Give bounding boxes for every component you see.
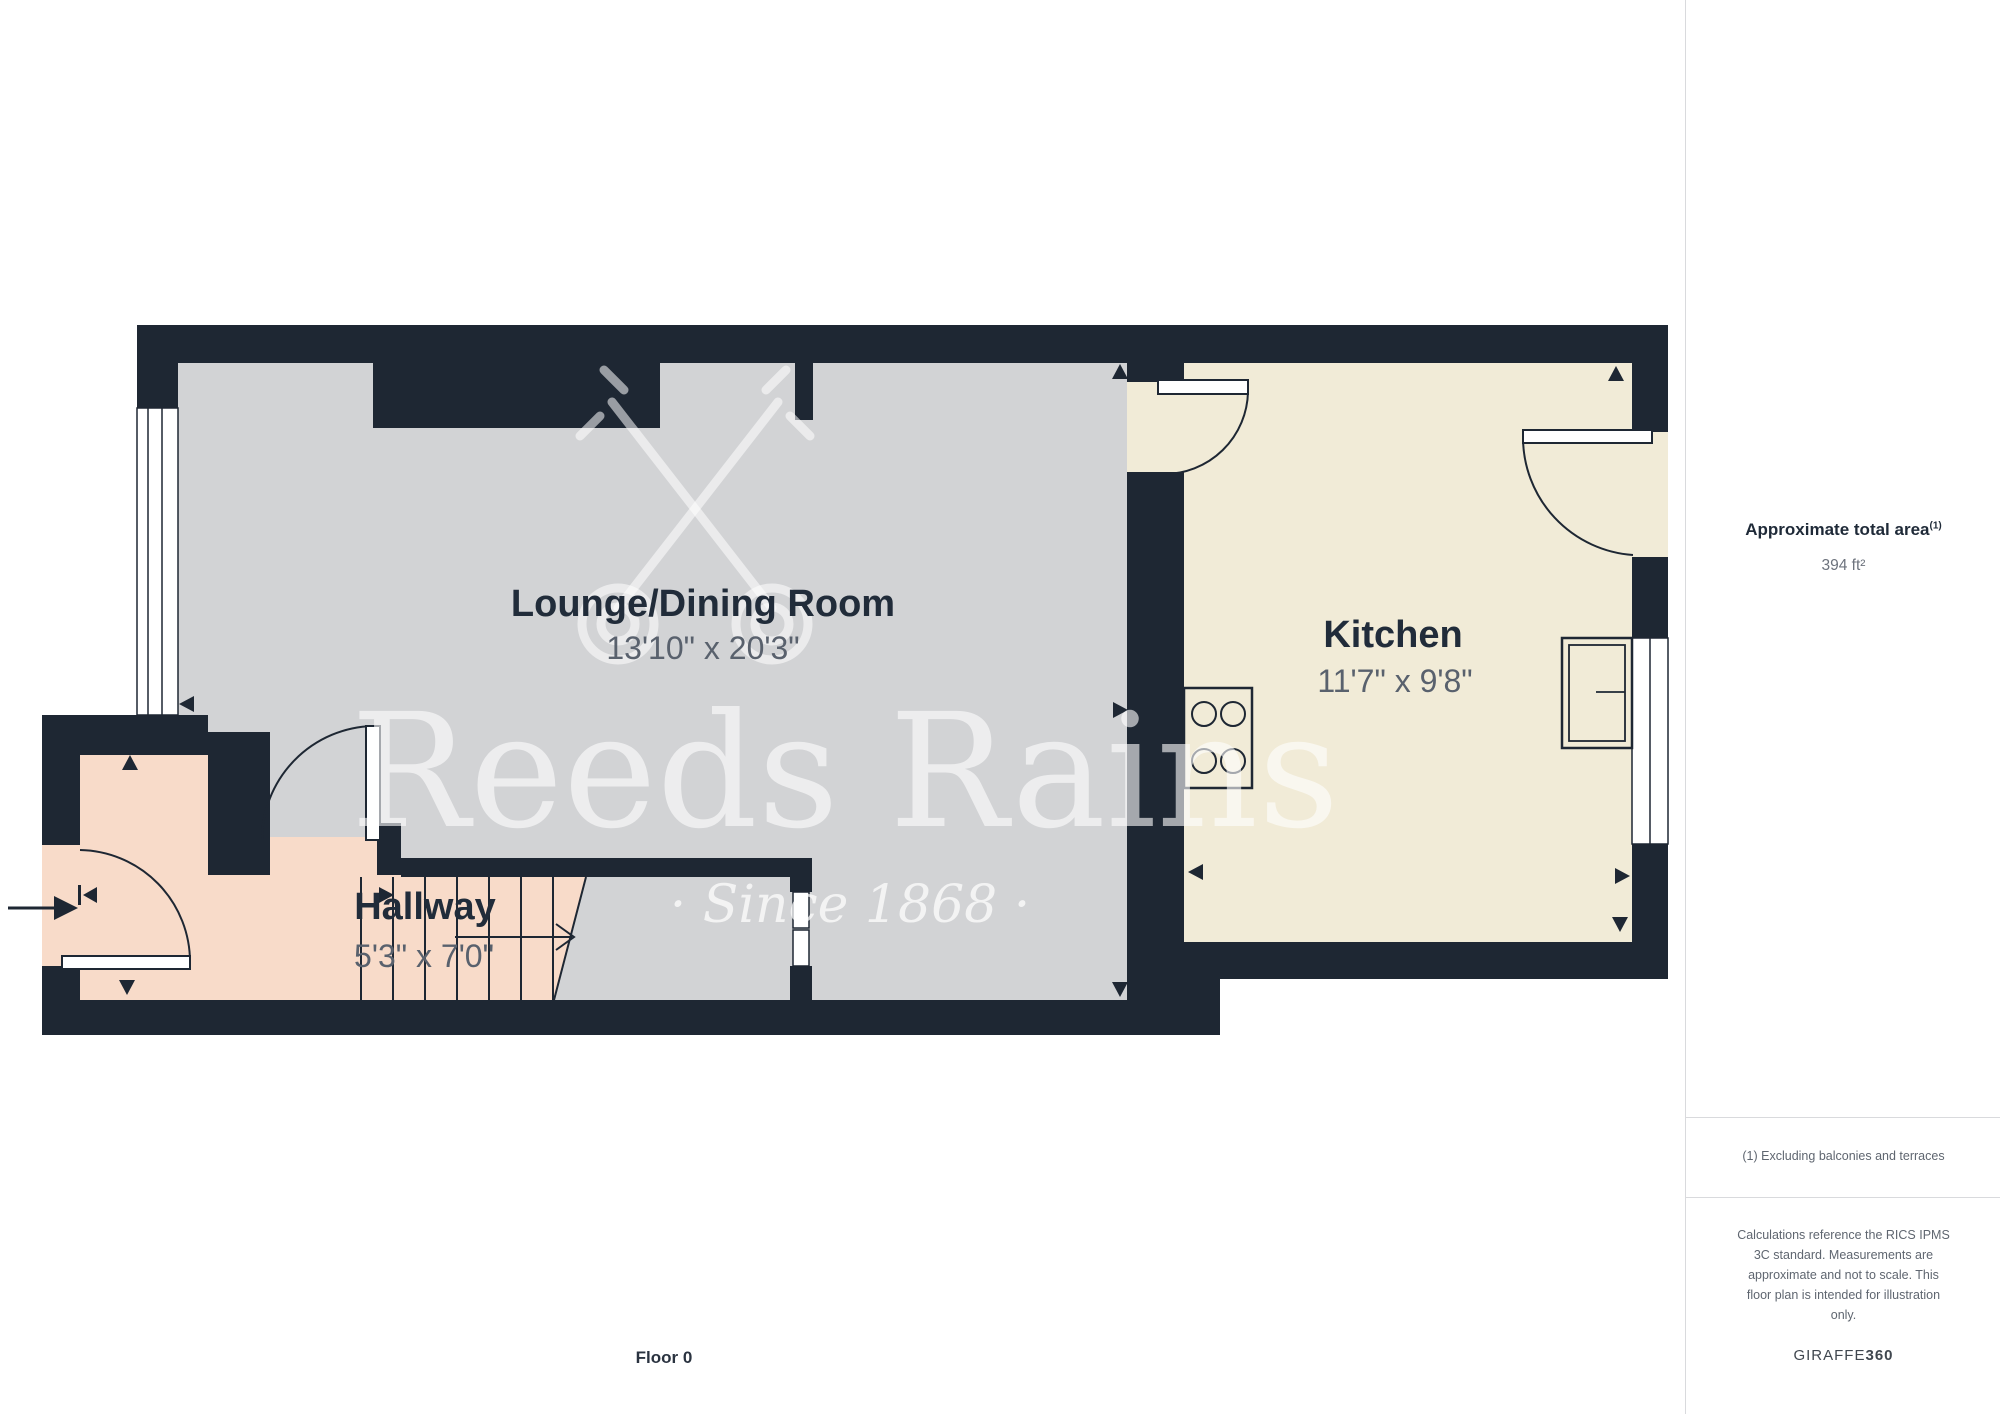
- window-kitchen-right: [1632, 638, 1668, 844]
- disclaimer-text: Calculations reference the RICS IPMS 3C …: [1704, 1225, 1983, 1325]
- sidebar-divider: [1686, 1197, 2000, 1198]
- footnote-text: (1) Excluding balconies and terraces: [1686, 1149, 2000, 1163]
- floorplan-page: Reeds Rains · Since 1868 · Lounge/Dining…: [0, 0, 2000, 1414]
- watermark-tagline: · Since 1868 ·: [670, 875, 1031, 935]
- giraffe360-logo: GIRAFFE360: [1686, 1347, 2000, 1364]
- hallway-dims: 5'3" x 7'0": [354, 938, 494, 974]
- lounge-dims: 13'10" x 20'3": [606, 630, 799, 666]
- kitchen-dims: 11'7" x 9'8": [1317, 663, 1472, 699]
- kitchen-label: Kitchen: [1323, 614, 1462, 656]
- kitchen-door-opening: [1632, 432, 1668, 557]
- sidebar-divider: [1686, 1117, 2000, 1118]
- total-area-value: 394 ft²: [1686, 557, 2000, 575]
- window-left: [137, 408, 178, 715]
- hallway-label: Hallway: [354, 886, 496, 928]
- sink-unit: [1562, 638, 1632, 748]
- lounge-label: Lounge/Dining Room: [511, 583, 895, 625]
- total-area-title: Approximate total area(1): [1686, 520, 2000, 540]
- info-sidebar: Approximate total area(1) 394 ft² (1) Ex…: [1685, 0, 2000, 1414]
- floor-level-label: Floor 0: [636, 1348, 693, 1367]
- footnote-ref: (1): [1930, 520, 1942, 531]
- watermark-brand: Reeds Rains: [351, 680, 1340, 864]
